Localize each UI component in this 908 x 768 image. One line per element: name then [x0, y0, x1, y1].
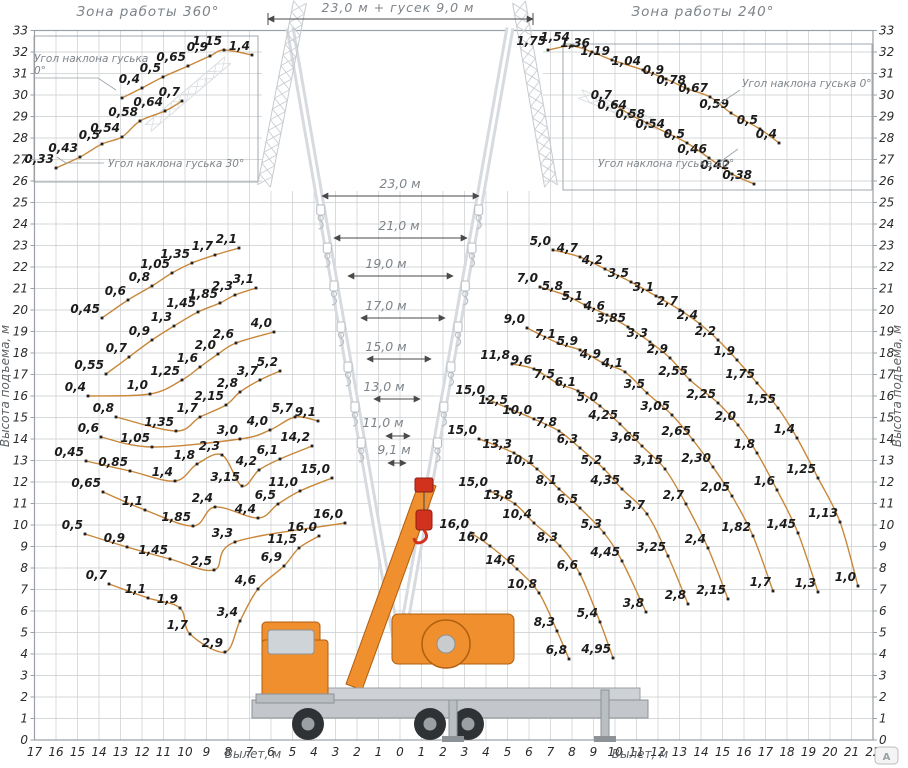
boom-head: [415, 478, 433, 492]
load-value-label: 0,9: [129, 324, 150, 338]
curve-point: [164, 110, 167, 113]
load-value-label: 0,8: [93, 401, 114, 415]
load-value-label: 0,38: [722, 168, 752, 182]
load-value-label: 0,6: [78, 421, 99, 435]
curve-point: [579, 447, 582, 450]
load-value-label: 3,3: [212, 526, 233, 540]
load-value-label: 4,2: [581, 253, 603, 267]
dimension-label: 11,0 м: [362, 415, 403, 430]
curve-point: [603, 532, 606, 535]
x-tick: 5: [504, 745, 512, 759]
load-value-label: 1,0: [835, 570, 856, 584]
flatbed: [300, 688, 640, 701]
load-value-label: 1,15: [192, 34, 222, 48]
y-tick-left: 19: [13, 325, 28, 339]
curve-point: [199, 366, 202, 369]
load-value-label: 1,9: [714, 344, 735, 358]
load-value-label: 0,43: [48, 141, 78, 155]
curve-point: [235, 342, 238, 345]
load-value-label: 3,15: [633, 453, 663, 467]
curve-point: [209, 55, 212, 58]
load-value-label: 3,7: [624, 498, 646, 512]
curve-point: [283, 565, 286, 568]
top-dimension-label: 23,0 м + гусек 9,0 м: [322, 0, 475, 15]
y-tick-right: 23: [879, 239, 894, 253]
jib-angle-0-left-value: 0°: [34, 65, 46, 77]
curve-point: [687, 603, 690, 606]
curve-point: [259, 379, 262, 382]
curve-point: [126, 546, 129, 549]
load-value-label: 2,4: [192, 491, 213, 505]
x-tick: 17: [758, 745, 774, 759]
load-value-label: 0,54: [635, 117, 665, 131]
load-value-label: 0,54: [90, 121, 120, 135]
dimension-label: 21,0 м: [378, 218, 419, 233]
load-value-label: 0,7: [106, 341, 128, 355]
load-value-label: 0,5: [664, 127, 685, 141]
x-tick: 0: [396, 745, 404, 759]
capacity-curve-left-21,0-1: 0,550,70,91,31,451,852,33,1: [74, 272, 257, 375]
y-tick-right: 11: [879, 497, 894, 511]
x-tick: 7: [547, 745, 555, 759]
curve-point: [669, 357, 672, 360]
load-value-label: 0,45: [70, 302, 100, 316]
curve-point: [667, 555, 670, 558]
curve-point: [641, 445, 644, 448]
load-value-label: 2,4: [685, 532, 706, 546]
curve-point: [538, 592, 541, 595]
dimension-label: 19,0 м: [365, 256, 406, 271]
curve-point: [796, 437, 799, 440]
curve-point: [756, 452, 759, 455]
y-tick-left: 1: [20, 712, 28, 726]
x-tick: 6: [525, 745, 533, 759]
curve-point: [736, 359, 739, 362]
x-tick: 20: [822, 745, 838, 759]
load-value-label: 5,4: [577, 606, 598, 620]
load-value-label: 1,35: [144, 415, 174, 429]
x-tick: 2: [439, 745, 447, 759]
crane-load-height-diagram: 0,450,60,81,051,351,72,10,550,70,91,31,4…: [0, 0, 908, 768]
curve-point: [162, 76, 165, 79]
x-tick: 13: [113, 745, 128, 759]
curve-point: [514, 503, 517, 506]
curve-point: [234, 541, 237, 544]
curve-point: [817, 591, 820, 594]
load-value-label: 2,4: [677, 308, 698, 322]
x-tick: 15: [715, 745, 730, 759]
curve-point: [197, 311, 200, 314]
y-tick-right: 21: [879, 282, 894, 296]
load-value-label: 1,4: [774, 422, 795, 436]
x-tick: 16: [736, 745, 752, 759]
curve-point: [102, 491, 105, 494]
load-value-label: 2,15: [696, 583, 726, 597]
curve-point: [175, 430, 178, 433]
curve-point: [536, 468, 539, 471]
curve-point: [84, 533, 87, 536]
load-value-label: 4,95: [580, 642, 611, 656]
curve-point: [179, 607, 182, 610]
y-tick-left: 7: [20, 583, 28, 597]
load-value-label: 6,1: [555, 375, 576, 389]
load-value-label: 8,1: [536, 473, 557, 487]
y-tick-right: 8: [879, 561, 887, 575]
load-value-label: 7,1: [535, 327, 556, 341]
curve-point: [87, 395, 90, 398]
curve-point: [299, 490, 302, 493]
jib-angle-0-right-label: Угол наклона гуська 0°: [742, 78, 872, 90]
load-value-label: 5,8: [542, 279, 563, 293]
dimension-label: 9,1 м: [377, 442, 410, 457]
load-value-label: 1,19: [580, 44, 610, 58]
capacity-curve-jib-right-3: 0,70,640,580,540,50,460,420,38: [591, 88, 756, 185]
y-tick-left: 9: [20, 540, 28, 554]
load-value-label: 9,6: [511, 353, 532, 367]
y-tick-right: 26: [879, 174, 895, 188]
load-value-label: 0,8: [129, 270, 150, 284]
load-value-label: 13,8: [483, 488, 513, 502]
load-value-label: 15,0: [300, 462, 330, 476]
load-value-label: 2,65: [661, 424, 691, 438]
capacity-curve-left-23,0-0: 0,450,60,81,051,351,72,1: [70, 232, 240, 319]
y-tick-right: 2: [879, 690, 887, 704]
load-value-label: 2,3: [212, 279, 233, 293]
y-tick-left: 27: [13, 153, 29, 167]
x-tick: 19: [801, 745, 816, 759]
curve-point: [646, 392, 649, 395]
outrigger-front-pad: [442, 736, 464, 742]
load-value-label: 1,0: [127, 378, 148, 392]
curve-point: [234, 294, 237, 297]
watermark-letter: А: [883, 752, 891, 763]
bumper: [256, 694, 334, 703]
curve-point: [692, 439, 695, 442]
load-value-label: 0,4: [65, 380, 86, 394]
load-value-label: 0,6: [105, 284, 126, 298]
y-tick-right: 30: [879, 88, 895, 102]
curve-point: [817, 477, 820, 480]
y-tick-right: 25: [879, 196, 894, 210]
x-tick: 12: [134, 745, 149, 759]
load-value-label: 0,59: [699, 97, 729, 111]
load-value-label: 0,65: [71, 476, 101, 490]
y-tick-right: 27: [879, 153, 895, 167]
y-tick-left: 21: [13, 282, 28, 296]
x-tick: 9: [590, 745, 598, 759]
load-value-label: 6,9: [261, 550, 282, 564]
curve-point: [776, 489, 779, 492]
winch-hub: [437, 635, 455, 653]
y-axis-label-left: Высота подъема, м: [0, 325, 12, 447]
load-value-label: 0,67: [678, 81, 708, 95]
x-tick: 9: [203, 745, 211, 759]
dimension-9,1 м: 9,1 м: [377, 442, 410, 463]
load-value-label: 11,5: [267, 532, 297, 546]
curve-point: [752, 535, 755, 538]
curve-point: [151, 339, 154, 342]
x-tick: 8: [568, 745, 576, 759]
curve-point: [753, 183, 756, 186]
y-tick-left: 17: [13, 368, 29, 382]
x-tick: 5: [289, 745, 297, 759]
load-value-label: 16,0: [313, 507, 343, 521]
load-value-label: 3,85: [596, 311, 626, 325]
curve-point: [731, 495, 734, 498]
curve-point: [689, 379, 692, 382]
load-value-label: 2,25: [686, 387, 716, 401]
curve-point: [255, 287, 258, 290]
curve-point: [79, 156, 82, 159]
jib-angle-30-right-label: Угол наклона гуська 30°: [598, 158, 734, 170]
curve-point: [707, 547, 710, 550]
curve-point: [241, 485, 244, 488]
curve-point: [149, 393, 152, 396]
x-tick: 11: [156, 745, 171, 759]
load-value-label: 1,7: [192, 239, 214, 253]
curve-point: [273, 331, 276, 334]
y-tick-right: 29: [879, 110, 894, 124]
curve-point: [685, 503, 688, 506]
curve-point: [105, 373, 108, 376]
curve-point: [857, 585, 860, 588]
load-value-label: 1,35: [160, 247, 190, 261]
load-value-label: 0,85: [98, 455, 128, 469]
curve-point: [277, 503, 280, 506]
y-tick-left: 23: [13, 239, 28, 253]
load-value-label: 15,0: [447, 423, 477, 437]
y-tick-right: 31: [879, 67, 894, 81]
load-value-label: 2,8: [217, 376, 238, 390]
x-axis-label-right: Вылет, м: [612, 747, 668, 761]
load-value-label: 1,8: [174, 448, 195, 462]
x-tick: 3: [461, 745, 469, 759]
curve-point: [621, 560, 624, 563]
curve-point: [279, 458, 282, 461]
capacity-curve-right-13,0-5: 15,013,310,18,16,55,34,453,8: [447, 423, 647, 613]
y-tick-left: 15: [13, 411, 28, 425]
load-value-label: 3,1: [233, 272, 254, 286]
load-value-label: 10,4: [502, 507, 532, 521]
load-value-label: 14,2: [280, 430, 310, 444]
watermark-logo: А: [875, 747, 898, 764]
curve-point: [568, 658, 571, 661]
load-value-label: 2,2: [695, 324, 716, 338]
load-value-label: 6,8: [546, 643, 567, 657]
curve-point: [181, 379, 184, 382]
dimension-label: 23,0 м: [379, 176, 420, 191]
load-value-label: 2,8: [665, 588, 686, 602]
outrigger-front: [449, 700, 457, 738]
curve-point: [169, 558, 172, 561]
load-value-label: 3,65: [610, 430, 640, 444]
y-tick-left: 18: [13, 346, 29, 360]
y-tick-left: 30: [13, 88, 29, 102]
y-tick-right: 1: [879, 712, 887, 726]
curve-point: [344, 522, 347, 525]
curve-point: [257, 517, 260, 520]
curve-point: [151, 285, 154, 288]
load-value-label: 1,1: [122, 494, 143, 508]
y-tick-right: 24: [879, 217, 894, 231]
load-value-label: 1,25: [150, 364, 180, 378]
y-tick-right: 10: [879, 518, 895, 532]
curve-point: [489, 545, 492, 548]
curve-point: [599, 621, 602, 624]
x-tick: 10: [177, 745, 193, 759]
load-value-label: 2,7: [657, 294, 679, 308]
curve-point: [174, 480, 177, 483]
curve-point: [556, 630, 559, 633]
load-value-label: 13,3: [482, 437, 512, 451]
curve-point: [478, 438, 481, 441]
curve-point: [239, 391, 242, 394]
front-wheel-hub: [302, 718, 315, 731]
curve-point: [646, 513, 649, 516]
y-tick-left: 28: [13, 131, 29, 145]
load-value-label: 7,5: [534, 367, 555, 381]
load-value-label: 1,25: [786, 462, 816, 476]
load-value-label: 2,55: [658, 364, 688, 378]
curve-point: [258, 469, 261, 472]
zone-title-240: Зона работы 240°: [631, 4, 774, 20]
load-value-label: 1,45: [766, 517, 796, 531]
y-tick-right: 13: [879, 454, 894, 468]
y-tick-right: 6: [879, 604, 887, 618]
y-tick-right: 20: [879, 303, 895, 317]
y-tick-left: 2: [20, 690, 28, 704]
x-tick: 17: [27, 745, 43, 759]
curve-point: [115, 416, 118, 419]
y-tick-left: 31: [13, 67, 28, 81]
curve-point: [189, 633, 192, 636]
y-tick-left: 3: [20, 669, 28, 683]
load-value-label: 4,9: [579, 347, 601, 361]
y-tick-left: 13: [13, 454, 28, 468]
capacity-curve-left-11,0-6: 0,651,11,852,44,46,511,015,0: [71, 462, 333, 527]
load-value-label: 6,6: [557, 558, 578, 572]
load-value-label: 2,30: [681, 451, 711, 465]
leader-left-0: [34, 78, 116, 90]
x-axis-label-left: Вылет, м: [225, 747, 281, 761]
curve-point: [279, 370, 282, 373]
curve-point: [318, 535, 321, 538]
load-value-label: 0,65: [156, 50, 186, 64]
y-tick-left: 6: [20, 604, 28, 618]
load-value-label: 0,5: [737, 113, 758, 127]
x-tick: 15: [70, 745, 85, 759]
y-tick-right: 32: [879, 45, 894, 59]
curve-point: [221, 454, 224, 457]
curve-point: [151, 446, 154, 449]
curve-point: [101, 317, 104, 320]
load-value-label: 5,0: [577, 390, 598, 404]
curve-point: [603, 468, 606, 471]
load-value-label: 0,4: [756, 127, 777, 141]
load-value-label: 14,6: [485, 553, 515, 567]
curve-point: [558, 488, 561, 491]
load-value-label: 5,2: [257, 355, 278, 369]
y-tick-right: 9: [879, 540, 887, 554]
curve-point: [298, 547, 301, 550]
load-value-label: 0,45: [54, 445, 84, 459]
curve-point: [121, 97, 124, 100]
y-tick-left: 22: [13, 260, 28, 274]
outrigger-rear: [601, 690, 609, 738]
x-tick: 4: [310, 745, 318, 759]
curve-point: [129, 470, 132, 473]
curve-point: [147, 597, 150, 600]
curve-point: [712, 466, 715, 469]
x-tick: 21: [844, 745, 859, 759]
dimension-17,0 м: 17,0 м: [361, 298, 445, 318]
y-axis-label-right: Высота подъема, м: [890, 325, 904, 447]
load-value-label: 2,15: [194, 389, 224, 403]
curve-point: [128, 356, 131, 359]
load-value-label: 2,0: [715, 409, 736, 423]
load-value-label: 4,4: [234, 502, 256, 516]
curve-point: [191, 262, 194, 265]
y-tick-right: 5: [879, 626, 887, 640]
load-value-label: 9,1: [295, 405, 316, 419]
load-value-label: 16,0: [439, 517, 469, 531]
curve-point: [552, 249, 555, 252]
load-value-label: 4,45: [589, 545, 620, 559]
load-value-label: 0,4: [119, 72, 140, 86]
curve-point: [257, 588, 260, 591]
curve-point: [579, 573, 582, 576]
y-tick-left: 25: [13, 196, 28, 210]
load-value-label: 3,15: [210, 470, 240, 484]
load-value-label: 1,9: [157, 592, 178, 606]
load-value-label: 3,8: [623, 596, 644, 610]
dimension-label: 15,0 м: [365, 339, 406, 354]
load-value-label: 1,4: [152, 465, 173, 479]
load-value-label: 10,1: [505, 453, 535, 467]
load-value-label: 16,0: [458, 530, 488, 544]
load-value-label: 2,9: [202, 636, 223, 650]
curve-point: [141, 87, 144, 90]
load-value-label: 8,3: [537, 530, 558, 544]
load-value-label: 1,45: [138, 543, 168, 557]
rear-wheel-2-hub: [462, 718, 475, 731]
curve-point: [778, 142, 781, 145]
load-value-label: 1,6: [754, 474, 775, 488]
y-tick-left: 8: [20, 561, 28, 575]
y-tick-left: 10: [13, 518, 29, 532]
curve-point: [85, 460, 88, 463]
load-value-label: 9,0: [504, 312, 525, 326]
load-value-label: 5,3: [581, 517, 602, 531]
dimension-11,0 м: 11,0 м: [362, 415, 410, 436]
load-value-label: 4,6: [234, 573, 256, 587]
dimension-label: 13,0 м: [363, 379, 404, 394]
curve-point: [187, 65, 190, 68]
curve-point: [214, 506, 217, 509]
load-value-label: 0,55: [74, 358, 104, 372]
load-value-label: 11,8: [480, 348, 510, 362]
curve-point: [777, 407, 780, 410]
load-value-label: 1,7: [750, 575, 772, 589]
curve-point: [223, 49, 226, 52]
y-tick-left: 33: [13, 24, 28, 38]
load-value-label: 3,5: [624, 377, 645, 391]
curve-point: [604, 268, 607, 271]
load-value-label: 10,0: [502, 403, 532, 417]
load-value-label: 15,0: [458, 475, 488, 489]
load-value-label: 1,55: [746, 392, 776, 406]
load-value-label: 6,5: [255, 488, 276, 502]
